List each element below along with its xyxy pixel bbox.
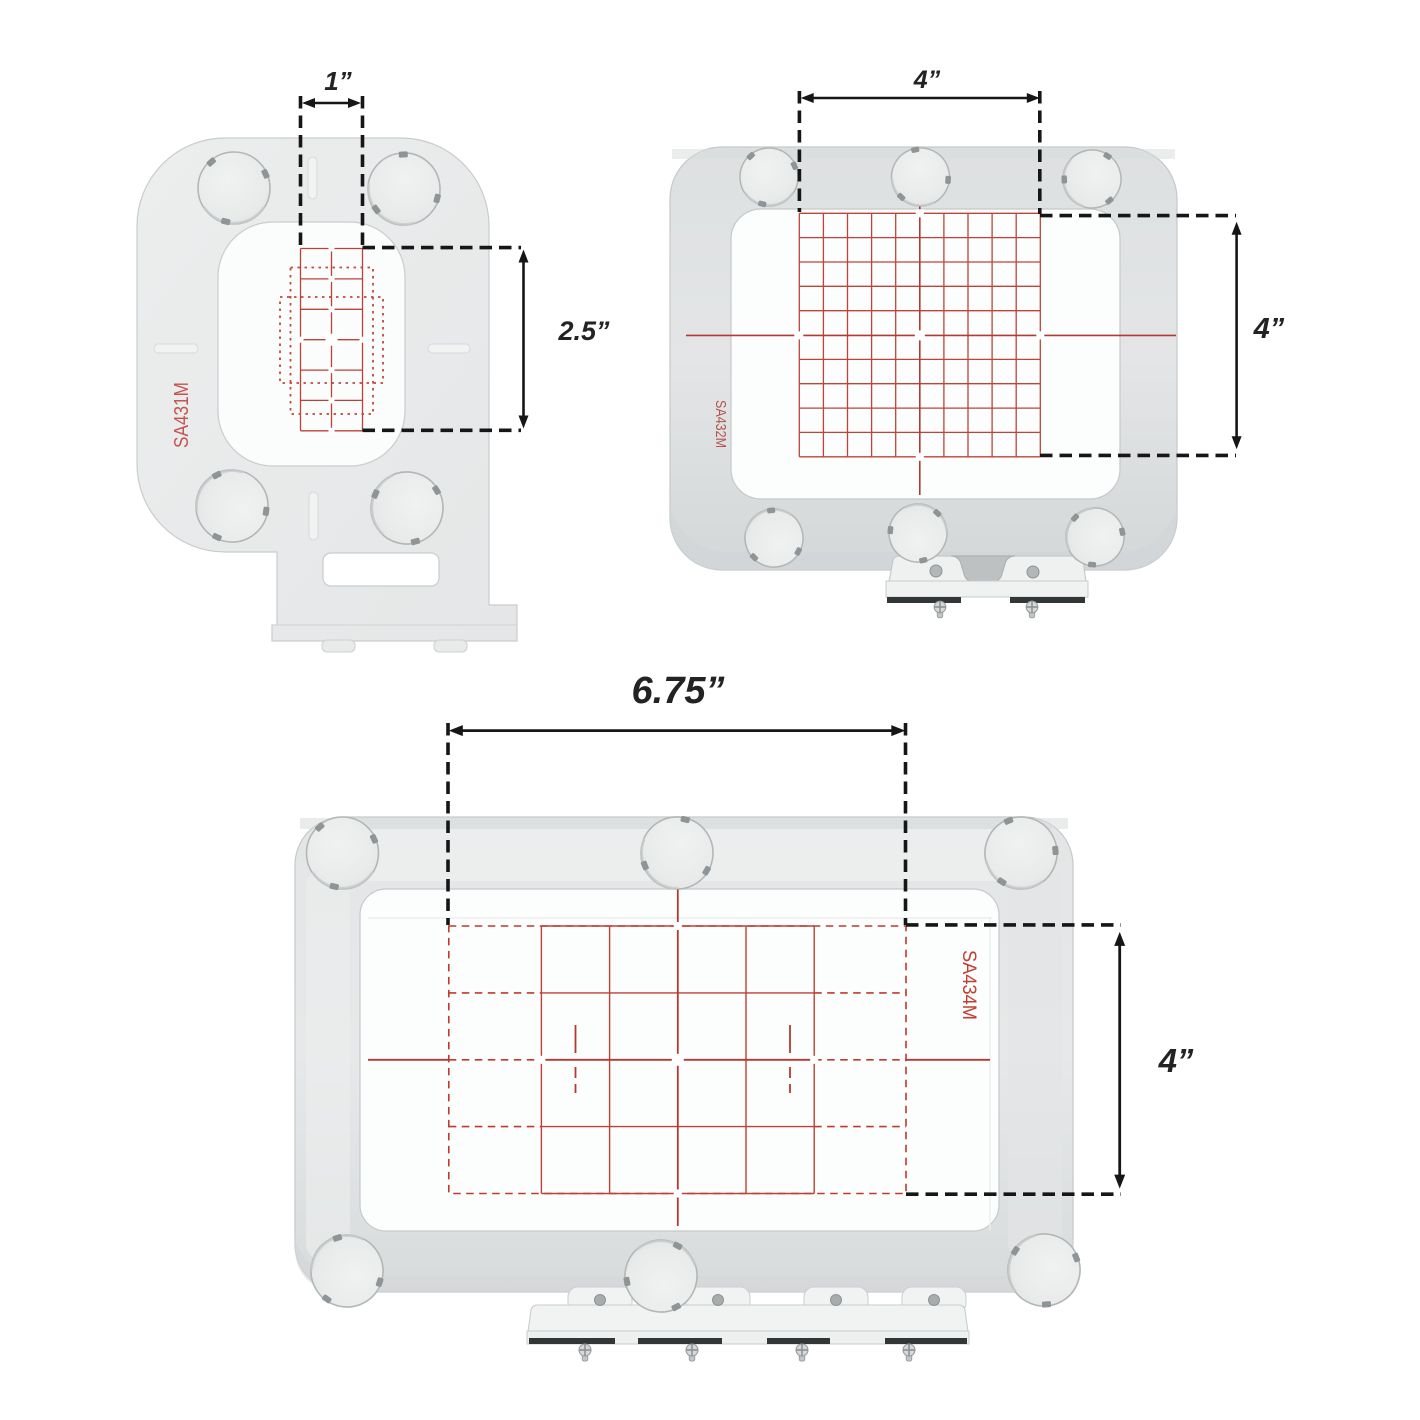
svg-text:SA434M: SA434M	[958, 950, 979, 1020]
svg-text:SA431M: SA431M	[171, 382, 193, 448]
svg-text:1”: 1”	[324, 66, 351, 96]
svg-text:4”: 4”	[913, 66, 941, 94]
svg-text:SA432M: SA432M	[712, 400, 729, 448]
svg-text:2.5”: 2.5”	[557, 316, 610, 346]
svg-text:6.75”: 6.75”	[632, 670, 725, 712]
svg-text:4”: 4”	[1158, 1042, 1194, 1079]
svg-text:4”: 4”	[1253, 313, 1285, 345]
